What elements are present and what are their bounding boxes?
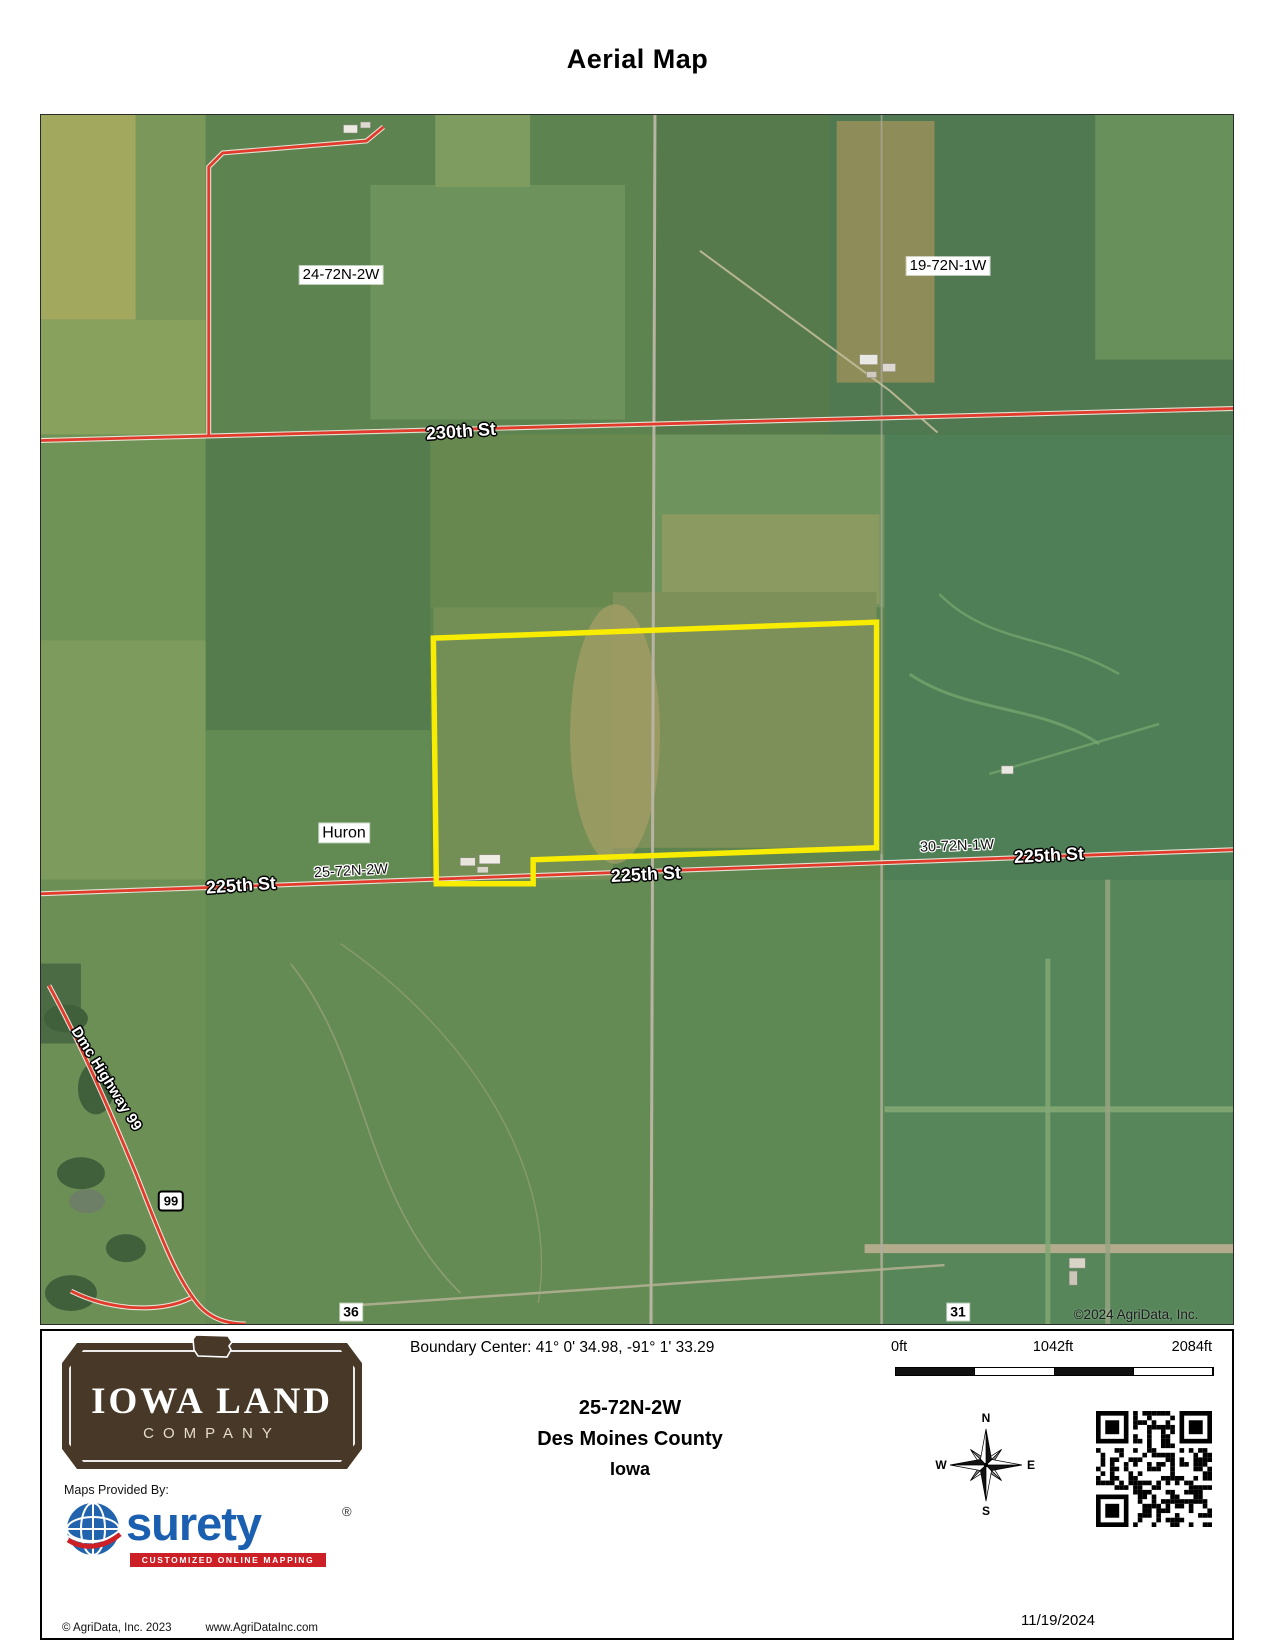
section-label-36: 36 (340, 1304, 362, 1321)
aerial-map: 24-72N-2W 19-72N-1W 230th St Huron 25-72… (40, 114, 1234, 1325)
agridata-credit: © AgriData, Inc. 2023 (62, 1622, 171, 1634)
logo-line2: COMPANY (143, 1425, 281, 1442)
agridata-url: www.AgriDataInc.com (205, 1622, 317, 1634)
town-label-huron: Huron (319, 823, 369, 842)
scale-bar (895, 1367, 1214, 1376)
compass-rose: N E S W (931, 1410, 1041, 1520)
page-title: Aerial Map (0, 44, 1275, 75)
iowa-land-logo: IOWA LAND COMPANY (62, 1343, 362, 1469)
parcel-county: Des Moines County (537, 1428, 723, 1451)
township-label-30: 30-72N-1W (920, 837, 995, 857)
section-label-19: 19-72N-1W (907, 257, 990, 275)
map-footer: Boundary Center: 41° 0' 34.98, -91° 1' 3… (40, 1329, 1234, 1640)
compass-e: E (1027, 1458, 1035, 1472)
highway-99-shield: 99 (158, 1191, 184, 1212)
scale-label-mid: 1042ft (1033, 1339, 1073, 1355)
maps-provided-by-label: Maps Provided By: (64, 1483, 169, 1497)
registered-mark: ® (342, 1504, 352, 1519)
logo-line1: IOWA LAND (91, 1380, 333, 1423)
compass-n: N (982, 1411, 991, 1425)
map-copyright: ©2024 AgriData, Inc. (1074, 1307, 1199, 1323)
aerial-imagery (41, 115, 1233, 1324)
globe-icon (64, 1500, 122, 1558)
map-date: 11/19/2024 (1021, 1612, 1095, 1629)
surety-logo: surety ® CUSTOMIZED ONLINE MAPPING (64, 1500, 394, 1580)
compass-w: W (935, 1458, 947, 1472)
pond (69, 1189, 105, 1213)
compass-s: S (982, 1504, 990, 1518)
road-label-225th-mid: 225th St (610, 862, 681, 887)
scale-label-end: 2084ft (1172, 1339, 1212, 1355)
road-label-225th-right: 225th St (1013, 843, 1084, 868)
credits-line: © AgriData, Inc. 2023www.AgriDataInc.com (62, 1622, 352, 1634)
scale-label-start: 0ft (891, 1339, 907, 1355)
boundary-center-text: Boundary Center: 41° 0' 34.98, -91° 1' 3… (410, 1339, 714, 1357)
iowa-state-icon (190, 1333, 234, 1359)
parcel-state: Iowa (610, 1459, 650, 1480)
qr-code (1096, 1411, 1212, 1527)
surety-tagline: CUSTOMIZED ONLINE MAPPING (130, 1553, 326, 1567)
section-label-24: 24-72N-2W (300, 266, 383, 284)
aerial-map-sheet: Aerial Map (0, 0, 1275, 1650)
parcel-township: 25-72N-2W (579, 1397, 681, 1420)
surety-wordmark: surety (126, 1496, 261, 1551)
section-label-31: 31 (947, 1304, 969, 1321)
